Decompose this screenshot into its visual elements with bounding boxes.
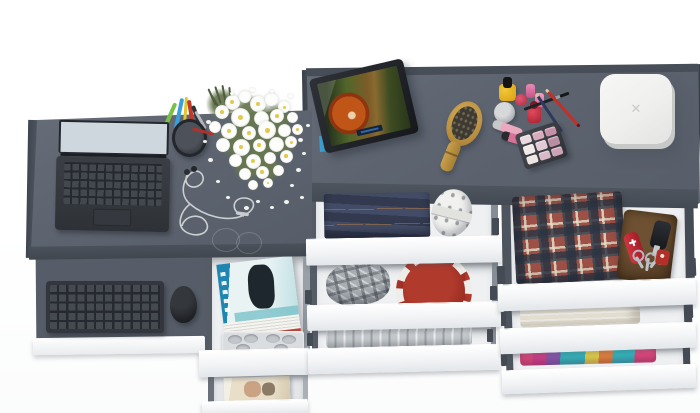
magazine-beige — [224, 376, 291, 402]
red-tag — [655, 249, 670, 266]
daisy-flower — [264, 152, 276, 164]
fallen-petal — [270, 206, 274, 209]
drawer-rail — [305, 290, 312, 304]
daisy-flower — [215, 105, 229, 119]
daisy-flower — [258, 121, 276, 139]
daisy-flower — [269, 137, 284, 152]
nail-polish-pink — [526, 84, 535, 98]
daisy-flower — [229, 154, 242, 167]
daisy-flower — [239, 168, 251, 180]
daisy-flower — [216, 138, 230, 152]
laptop-trackpad — [93, 209, 131, 227]
fallen-petal — [306, 124, 310, 127]
fallen-petal — [302, 152, 306, 155]
laptop-deck — [55, 156, 171, 232]
daisy-flower — [280, 150, 293, 163]
magazine-drawer-front — [199, 348, 310, 378]
leather-wallet — [616, 209, 678, 285]
daisy-flower — [285, 136, 297, 148]
laptop-screen — [58, 120, 169, 155]
drawer-rail — [501, 354, 507, 366]
jewelry-box-mark: ✕ — [631, 102, 642, 117]
folded-tartan-shirt — [512, 191, 626, 285]
mouse — [170, 286, 197, 323]
fallen-petal — [230, 92, 234, 95]
drawer-rail — [686, 304, 693, 318]
eyeshadow-pan — [523, 144, 536, 155]
organizer-slot — [282, 335, 296, 344]
fallen-petal — [298, 138, 303, 142]
fallen-petal — [256, 200, 260, 203]
drawer-rail — [307, 333, 313, 346]
desk-scene: ✕ — [0, 0, 700, 413]
laptop-keyboard — [63, 162, 162, 206]
fallen-petal — [288, 94, 293, 98]
daisy-flower — [263, 178, 273, 188]
magazine-cover-figure — [247, 264, 275, 309]
eyeshadow-pan — [526, 154, 539, 165]
drawer-rail — [490, 286, 497, 300]
daisy-flower — [265, 93, 278, 106]
middle-drawer1-front — [306, 235, 502, 265]
fallen-petal — [206, 120, 211, 124]
daisy-flower — [256, 166, 269, 179]
organizer-slot — [228, 335, 242, 344]
fallen-petal — [300, 196, 304, 199]
eyeshadow-pan — [547, 136, 560, 147]
organizer-slot — [244, 334, 258, 343]
daisy-flower — [270, 109, 284, 123]
fallen-petal — [290, 184, 294, 187]
hairbrush-handle — [439, 140, 463, 174]
daisy-flower — [242, 126, 256, 140]
middle-drawer3-front — [308, 344, 501, 375]
drawer-rail — [492, 218, 499, 235]
organizer-slot — [266, 334, 280, 343]
keyboard-tray-front — [33, 336, 205, 355]
nail-polish-yellow — [499, 84, 516, 101]
daisy-flower — [248, 180, 258, 190]
jewelry-box: ✕ — [600, 74, 672, 144]
fallen-petal — [250, 88, 255, 92]
daisy-flower — [273, 165, 284, 176]
flower-bouquet — [195, 82, 325, 242]
fallen-petal — [216, 180, 220, 183]
fallen-petal — [244, 206, 249, 210]
eyeshadow-pan — [551, 146, 564, 157]
tablet-subtitle-bar — [356, 125, 383, 137]
fallen-petal — [203, 140, 207, 143]
laptop — [55, 120, 171, 232]
keyboard — [46, 281, 164, 333]
eyeshadow-pan — [535, 140, 548, 151]
daisy-flower — [209, 121, 221, 133]
drawer-rail — [487, 329, 493, 342]
daisy-flower — [292, 124, 303, 135]
folded-jeans — [324, 192, 431, 239]
fallen-petal — [284, 200, 289, 204]
middle-drawer2-front — [307, 301, 502, 331]
eyeshadow-pan — [538, 150, 551, 161]
fallen-petal — [296, 168, 301, 172]
daisy-flower — [221, 123, 237, 139]
drawer-rail — [497, 266, 506, 284]
magazine-spine-text-marks — [220, 271, 230, 313]
daisy-flower — [287, 112, 298, 123]
earbud — [184, 169, 190, 175]
fallen-petal — [226, 196, 230, 199]
fallen-petal — [270, 90, 274, 93]
daisy-flower — [233, 139, 250, 156]
daisy-flower — [250, 96, 266, 112]
daisy-flower — [253, 139, 266, 152]
daisy-flower — [239, 91, 251, 103]
magazine-cover — [216, 256, 299, 324]
fallen-petal — [208, 158, 213, 162]
drawer-rail — [688, 258, 697, 276]
daisy-flower — [278, 124, 291, 137]
magazine-drawer2-front — [202, 399, 308, 413]
